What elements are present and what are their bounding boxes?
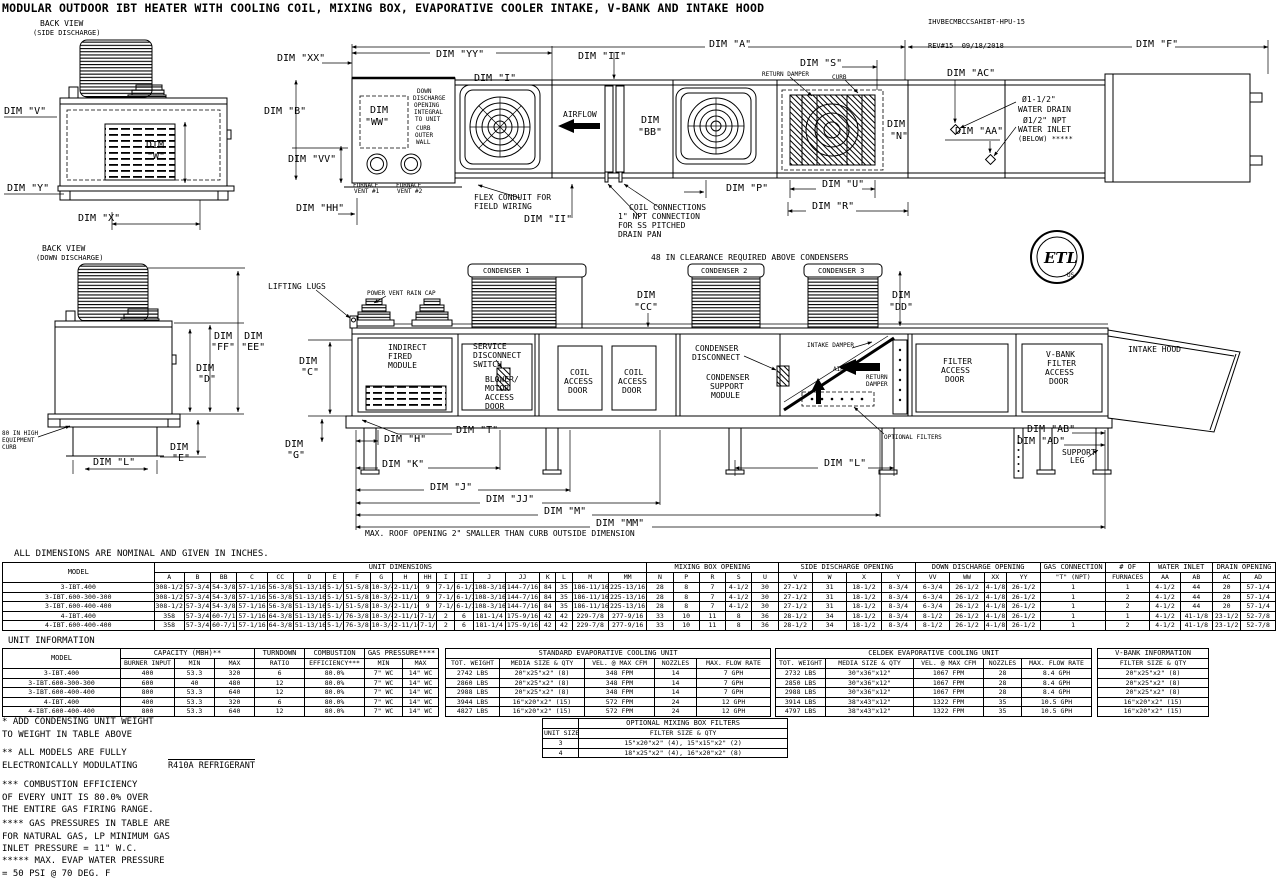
model-cell: 3-IBT.600-400-400	[3, 688, 121, 698]
value-cell: 225-13/16	[608, 583, 646, 593]
table-row: 2988 LBS20"x25"x2" (8)348 FPM147 GPH	[446, 688, 771, 698]
drawing-label: DIM "A"	[709, 39, 751, 50]
drawing-label: Ø1-1/2"	[1022, 94, 1056, 104]
table-row: TOT. WEIGHTMEDIA SIZE & QTYVEL. @ MAX CF…	[446, 659, 771, 669]
group-header: MIXING BOX OPENING	[647, 563, 778, 573]
value-cell: 6-1/2	[455, 602, 473, 612]
value-cell: 18-1/2	[847, 592, 881, 602]
value-cell: 10-3/4	[370, 583, 392, 593]
value-cell: 6	[255, 697, 305, 707]
value-cell: 4797 LBS	[776, 707, 826, 717]
drawing-label: DIM "AB"	[1027, 424, 1075, 435]
drawing-label: DIM "M"	[544, 506, 586, 517]
value-cell: 308-1/2	[154, 592, 184, 602]
table-row: 418"x25"x2" (4), 16"x20"x2" (8)	[543, 748, 788, 758]
value-cell: 35	[984, 707, 1022, 717]
value-cell: 572 FPM	[585, 697, 655, 707]
value-cell: 40	[175, 678, 215, 688]
value-cell: 8.4 GPH	[1022, 688, 1092, 698]
value-cell: 7" WC	[365, 678, 403, 688]
standard-evap-table: STANDARD EVAPORATIVE COOLING UNITTOT. WE…	[445, 648, 771, 717]
value-cell: 51-5/8	[344, 602, 370, 612]
drawing-label: ACCESS	[618, 377, 647, 386]
value-cell: 44	[1180, 602, 1212, 612]
value-cell: 14" WC	[403, 707, 439, 717]
model-cell: 4-IBT.600-400-400	[3, 707, 121, 717]
value-cell: 28-1/2	[778, 621, 812, 631]
value-cell: 8	[726, 621, 752, 631]
value-cell: 2-11/16	[392, 611, 418, 621]
value-cell: 4-1/2	[726, 592, 752, 602]
value-cell: 51-13/16	[293, 602, 325, 612]
drawing-label: WATER DRAIN	[1018, 105, 1071, 114]
value-cell: 225-13/16	[608, 602, 646, 612]
unit-size-cell: 4	[543, 748, 579, 758]
table-row: 4797 LBS38"x43"x12"1322 FPM3510.5 GPH	[776, 707, 1092, 717]
column-header: BB	[211, 573, 237, 583]
value-cell: 9	[419, 592, 437, 602]
value-cell: 108-3/16	[473, 602, 505, 612]
model-cell: 3-IBT.600-300-300	[3, 678, 121, 688]
value-cell: 186-11/16	[572, 592, 608, 602]
value-cell: 600	[121, 678, 175, 688]
value-cell: 12	[255, 688, 305, 698]
value-cell: 8.4 GPH	[1022, 678, 1092, 688]
value-cell: 308-1/2	[154, 602, 184, 612]
model-cell: 3-IBT.400	[3, 669, 121, 679]
value-cell: 26-1/2	[950, 583, 984, 593]
drawing-label: INTAKE HOOD	[1128, 345, 1181, 354]
value-cell: 4-1/8	[984, 621, 1006, 631]
value-cell: 308-1/2	[154, 583, 184, 593]
value-cell: 28	[984, 669, 1022, 679]
drawing-label: DOOR	[622, 386, 641, 395]
drawing-label: MAX. ROOF OPENING 2" SMALLER THAN CURB O…	[365, 529, 635, 538]
value-cell: 30	[752, 602, 778, 612]
filter-size-cell: 15"x20"x2" (4), 15"x15"x2" (2)	[579, 739, 788, 749]
drawing-label: DIM "R"	[812, 201, 854, 212]
value-cell: 23-1/2	[1212, 621, 1240, 631]
value-cell: 10-3/4	[370, 602, 392, 612]
value-cell: 1	[1041, 611, 1106, 621]
column-header: TOT. WEIGHT	[446, 659, 500, 669]
value-cell: 30	[752, 592, 778, 602]
drawing-label: (DOWN DISCHARGE)	[36, 254, 103, 262]
model-cell: 3-IBT.400	[3, 583, 155, 593]
value-cell: 2-11/16	[392, 602, 418, 612]
value-cell: 38"x43"x12"	[826, 697, 914, 707]
drawing-label: OUTER	[415, 132, 433, 139]
drawing-label: DIM "U"	[822, 179, 864, 190]
value-cell: 348 FPM	[585, 688, 655, 698]
table-row: 2850 LBS30"x36"x12"1067 FPM288.4 GPH	[776, 678, 1092, 688]
value-cell: 4-1/8	[984, 611, 1006, 621]
column-header: FURNACES	[1105, 573, 1149, 583]
value-cell: 6-1/2	[455, 592, 473, 602]
value-cell: 20	[1212, 583, 1240, 593]
value-cell: 175-9/16	[505, 621, 539, 631]
value-cell: 144-7/16	[505, 583, 539, 593]
drawing-label: DOWN	[417, 88, 432, 95]
column-header: W	[812, 573, 846, 583]
value-cell: 33	[647, 611, 673, 621]
drawing-label: DIM "P"	[726, 183, 768, 194]
value-cell: 4-1/8	[984, 592, 1006, 602]
value-cell: 53.3	[175, 697, 215, 707]
group-header: GAS CONNECTION	[1041, 563, 1106, 573]
back-view-side-discharge	[4, 40, 234, 230]
value-cell: 7	[699, 602, 725, 612]
column-header: I	[437, 573, 455, 583]
note-condensing-weight: * ADD CONDENSING UNIT WEIGHT TO WEIGHT I…	[2, 716, 154, 741]
table-row: MODELCAPACITY (MBH)**TURNDOWNCOMBUSTIONG…	[3, 649, 439, 659]
value-cell: 26-1/2	[1006, 611, 1040, 621]
column-header: E	[326, 573, 344, 583]
value-cell: 400	[121, 669, 175, 679]
value-cell: 20"x25"x2" (8)	[1098, 688, 1209, 698]
drawing-label: DIM "YY"	[436, 49, 484, 60]
value-cell: 18-1/2	[847, 583, 881, 593]
drawing-label: "E"	[172, 453, 190, 464]
value-cell: 175-9/16	[505, 611, 539, 621]
value-cell: 10-3/4	[370, 592, 392, 602]
column-header: JJ	[505, 573, 539, 583]
value-cell: 9	[419, 602, 437, 612]
value-cell: 4-1/8	[984, 602, 1006, 612]
value-cell: 8-3/4	[881, 602, 915, 612]
value-cell: 7 GPH	[697, 678, 771, 688]
drawing-label: CONDENSER	[695, 344, 739, 353]
value-cell: 80.0%	[305, 678, 365, 688]
value-cell: 277-9/16	[608, 611, 646, 621]
drawing-label: BLOWER/	[485, 375, 519, 384]
drawing-label: DIM "AD"	[1017, 436, 1065, 447]
value-cell: 56-3/8	[267, 602, 293, 612]
note-combustion-efficiency: *** COMBUSTION EFFICIENCY OF EVERY UNIT …	[2, 779, 154, 817]
value-cell: 10	[673, 611, 699, 621]
column-header: M	[572, 573, 608, 583]
value-cell: 57-3/4	[184, 611, 210, 621]
drawing-label: BACK VIEW	[42, 244, 86, 253]
value-cell: 2	[437, 611, 455, 621]
value-cell: 225-13/16	[608, 592, 646, 602]
table-row: 4-IBT.600-400-40080053.36401280.0%7" WC1…	[3, 707, 439, 717]
cooling-coil	[605, 86, 613, 172]
value-cell: 52-7/8	[1241, 621, 1276, 631]
value-cell: 229-7/8	[572, 621, 608, 631]
drawing-label: SWITCH	[473, 360, 502, 369]
value-cell: 10-3/4	[370, 611, 392, 621]
value-cell: 1067 FPM	[914, 669, 984, 679]
value-cell: 6-3/4	[916, 602, 950, 612]
filter-size-cell: 18"x25"x2" (4), 16"x20"x2" (8)	[579, 748, 788, 758]
drawing-label: DIM "F"	[1136, 39, 1178, 50]
drawing-label: DIM "K"	[382, 459, 424, 470]
drawing-label: DIM "X"	[78, 213, 120, 224]
plan-view	[292, 40, 1268, 225]
table-row: 2742 LBS20"x25"x2" (8)348 FPM147 GPH	[446, 669, 771, 679]
drawing-label: DIM "I"	[474, 73, 516, 84]
table-row: 3-IBT.600-400-40080053.36401280.0%7" WC1…	[3, 688, 439, 698]
value-cell: 76-3/8	[344, 621, 370, 631]
column-header: XX	[984, 573, 1006, 583]
column-header: AC	[1212, 573, 1240, 583]
table-row: 3-IBT.600-300-300308-1/257-3/454-3/857-1…	[3, 592, 1276, 602]
drawing-label: MOTOR	[485, 384, 509, 393]
table-row: 315"x20"x2" (4), 15"x15"x2" (2)	[543, 739, 788, 749]
value-cell: 186-11/16	[572, 583, 608, 593]
column-header: D	[293, 573, 325, 583]
value-cell: 348 FPM	[585, 669, 655, 679]
value-cell: 57-3/4	[184, 602, 210, 612]
column-header: V	[778, 573, 812, 583]
value-cell: 28	[647, 592, 673, 602]
column-header: II	[455, 573, 473, 583]
group-header: # OF	[1105, 563, 1149, 573]
value-cell: 7" WC	[365, 707, 403, 717]
value-cell: 35	[556, 583, 572, 593]
value-cell: 108-3/16	[473, 583, 505, 593]
value-cell: 26-1/2	[1006, 583, 1040, 593]
drawing-label: V-BANK	[1046, 350, 1075, 359]
value-cell: 28-1/2	[778, 611, 812, 621]
table-row: ABBBCCCDEFGHHHIIIJJJKLMMMNPRSUVWXYVVWWXX…	[3, 573, 1276, 583]
drawing-sheet: MODULAR OUTDOOR IBT HEATER WITH COOLING …	[0, 0, 1280, 880]
value-cell: 1	[1105, 611, 1149, 621]
value-cell: 31	[812, 592, 846, 602]
column-header: MEDIA SIZE & QTY	[500, 659, 585, 669]
model-cell: 4-IBT.400	[3, 611, 155, 621]
drawing-label: DIM	[892, 290, 910, 301]
drawing-label: 1" NPT CONNECTION	[618, 212, 700, 221]
drawing-label: FIRED	[388, 352, 412, 361]
column-header: BURNER INPUT	[121, 659, 175, 669]
drawing-label: US	[1067, 272, 1075, 279]
drawing-label: BACK VIEW	[40, 19, 84, 28]
drawing-label: SUPPORT	[710, 382, 744, 391]
drawing-label: "BB"	[638, 127, 662, 138]
column-header: EFFICIENCY***	[305, 659, 365, 669]
value-cell: 54-3/8	[211, 602, 237, 612]
value-cell: 18-1/2	[847, 602, 881, 612]
value-cell: 51-5/8	[344, 583, 370, 593]
group-header: CAPACITY (MBH)**	[121, 649, 255, 659]
value-cell: 51-5/8	[344, 592, 370, 602]
column-header: UNIT SIZE	[543, 729, 579, 739]
value-cell: 9	[419, 583, 437, 593]
group-header: STANDARD EVAPORATIVE COOLING UNIT	[446, 649, 771, 659]
value-cell: 34	[812, 621, 846, 631]
value-cell: 30	[752, 583, 778, 593]
value-cell: 36	[752, 611, 778, 621]
value-cell: 1	[1041, 592, 1106, 602]
value-cell: 229-7/8	[572, 611, 608, 621]
value-cell: 358	[154, 621, 184, 631]
value-cell: 5-1/4	[326, 602, 344, 612]
drawing-label: INTEGRAL	[414, 109, 443, 116]
value-cell: 8-3/4	[881, 592, 915, 602]
value-cell: 2	[1105, 621, 1149, 631]
table-row: 3-IBT.600-400-400308-1/257-3/454-3/857-1…	[3, 602, 1276, 612]
group-header: DOWN DISCHARGE OPENING	[916, 563, 1041, 573]
drawing-label: WALL	[416, 139, 431, 146]
drawing-label: "FF" "EE"	[211, 342, 265, 353]
column-header: X	[847, 573, 881, 583]
table-row: 3-IBT.400308-1/257-3/454-3/857-1/1656-3/…	[3, 583, 1276, 593]
value-cell: 42	[556, 621, 572, 631]
value-cell: 144-7/16	[505, 592, 539, 602]
value-cell: 2-11/16	[392, 583, 418, 593]
group-header: TURNDOWN	[255, 649, 305, 659]
value-cell: 57-1/16	[237, 592, 267, 602]
column-header: MAX. FLOW RATE	[1022, 659, 1092, 669]
drawing-label: CONDENSER	[706, 373, 750, 382]
drawing-label: INDIRECT	[388, 343, 427, 352]
drawing-label: DIM	[887, 119, 905, 130]
value-cell: 2732 LBS	[776, 669, 826, 679]
column-header: AB	[1180, 573, 1212, 583]
value-cell: 7-1/4	[419, 611, 437, 621]
value-cell: 8-1/2	[916, 621, 950, 631]
unit-information-label: UNIT INFORMATION	[8, 636, 95, 646]
value-cell: 35	[556, 592, 572, 602]
value-cell: 56-3/8	[267, 583, 293, 593]
group-header: OPTIONAL MIXING BOX FILTERS	[579, 719, 788, 729]
value-cell: 4827 LBS	[446, 707, 500, 717]
value-cell: 20	[1212, 592, 1240, 602]
column-header: VEL. @ MAX CFM	[914, 659, 984, 669]
value-cell: 4-1/2	[1150, 583, 1180, 593]
value-cell: 4-1/2	[1150, 592, 1180, 602]
value-cell: 320	[215, 697, 255, 707]
value-cell: 8-3/4	[881, 621, 915, 631]
value-cell: 18-1/2	[847, 621, 881, 631]
value-cell: 26-1/2	[1006, 621, 1040, 631]
table-row: FILTER SIZE & QTY	[1098, 659, 1209, 669]
value-cell: 7" WC	[365, 669, 403, 679]
model-cell: 3-IBT.600-300-300	[3, 592, 155, 602]
drawing-label: FLEX CONDUIT FOR	[474, 193, 551, 202]
value-cell: 14" WC	[403, 678, 439, 688]
value-cell: 60-7/16	[211, 611, 237, 621]
drawing-label: DISCONNECT	[692, 353, 740, 362]
value-cell: 31	[812, 602, 846, 612]
value-cell: 1067 FPM	[914, 678, 984, 688]
drawing-label: DAMPER	[866, 381, 888, 388]
table-row: 20"x25"x2" (8)	[1098, 669, 1209, 679]
column-header: VV	[916, 573, 950, 583]
value-cell: 53.3	[175, 688, 215, 698]
column-header: YY	[1006, 573, 1040, 583]
column-header: L	[556, 573, 572, 583]
value-cell: 181-1/4	[473, 611, 505, 621]
value-cell: 2988 LBS	[446, 688, 500, 698]
value-cell: 57-1/16	[237, 611, 267, 621]
drawing-label: DIM "L"	[824, 458, 866, 469]
value-cell: 1322 FPM	[914, 707, 984, 717]
drawing-label: (SIDE DISCHARGE)	[33, 29, 100, 37]
drawing-label: DIM "J"	[430, 482, 472, 493]
value-cell: 8	[673, 602, 699, 612]
drawing-label: FIELD WIRING	[474, 202, 532, 211]
v-bank-table: V-BANK INFORMATIONFILTER SIZE & QTY20"x2…	[1097, 648, 1209, 717]
intake-hood-plan	[1105, 74, 1250, 182]
value-cell: 20"x25"x2" (8)	[500, 669, 585, 679]
celdek-evap-table: CELDEK EVAPORATIVE COOLING UNITTOT. WEIG…	[775, 648, 1092, 717]
value-cell: 53.3	[175, 707, 215, 717]
value-cell: 1	[1041, 621, 1106, 631]
drawing-label: "N"	[890, 131, 908, 142]
value-cell: 24	[655, 707, 697, 717]
value-cell: 1	[1041, 602, 1106, 612]
dimensions-caption: ALL DIMENSIONS ARE NOMINAL AND GIVEN IN …	[14, 549, 269, 559]
column-header: F	[344, 573, 370, 583]
value-cell: 5-1/4	[326, 611, 344, 621]
value-cell: 12 GPH	[697, 697, 771, 707]
value-cell: 8	[673, 592, 699, 602]
column-header: NOZZLES	[655, 659, 697, 669]
value-cell: 57-1/4	[1241, 592, 1276, 602]
value-cell: 10	[673, 621, 699, 631]
table-row: UNIT SIZEFILTER SIZE & QTY	[543, 729, 788, 739]
drawing-label: DOOR	[568, 386, 587, 395]
unit-body	[352, 328, 1108, 416]
value-cell: 53.3	[175, 669, 215, 679]
value-cell: 358	[154, 611, 184, 621]
value-cell: 27-1/2	[778, 583, 812, 593]
drawing-label: DIM	[146, 140, 164, 151]
value-cell: 7 GPH	[697, 688, 771, 698]
value-cell: 2	[437, 621, 455, 631]
column-header: "T" (NPT)	[1041, 573, 1106, 583]
drawing-label: DIM "MM"	[596, 518, 644, 529]
value-cell: 8-3/4	[881, 611, 915, 621]
value-cell: 44	[1180, 583, 1212, 593]
value-cell: 31	[812, 583, 846, 593]
drawing-label: "DD"	[889, 302, 913, 313]
drawing-label: WATER INLET	[1018, 125, 1071, 134]
drawing-label: POWER VENT RAIN CAP	[367, 290, 436, 297]
value-cell: 2850 LBS	[776, 678, 826, 688]
group-header: WATER INLET	[1150, 563, 1213, 573]
column-header: FILTER SIZE & QTY	[1098, 659, 1209, 669]
return-damper-plan	[782, 90, 883, 170]
value-cell: 277-9/16	[608, 621, 646, 631]
table-row: 16"x20"x2" (15)	[1098, 697, 1209, 707]
drawing-label: OPENING	[414, 102, 440, 109]
drawing-label: DIM "VV"	[288, 154, 336, 165]
drawing-label: TO UNIT	[415, 116, 441, 123]
drawing-label: CURB	[832, 74, 847, 81]
value-cell: 7 GPH	[697, 669, 771, 679]
drawing-label: ACCESS	[485, 393, 514, 402]
column-header-model: MODEL	[3, 563, 155, 583]
drawing-label: DIM "S"	[800, 58, 842, 69]
value-cell: 28	[984, 688, 1022, 698]
drawing-label: DIM "AA"	[955, 126, 1003, 137]
column-header: Y	[881, 573, 915, 583]
column-header: N	[647, 573, 673, 583]
value-cell: 7-1/4	[437, 592, 455, 602]
drawing-label: CURB	[416, 125, 431, 132]
value-cell: 1322 FPM	[914, 697, 984, 707]
value-cell: 76-3/8	[344, 611, 370, 621]
drawing-label: AIRFLOW	[563, 110, 597, 119]
drawing-label: COIL	[570, 368, 589, 377]
drawing-label: DIM "AC"	[947, 68, 995, 79]
value-cell: 5-1/4	[326, 592, 344, 602]
value-cell: 4-1/2	[1150, 621, 1180, 631]
